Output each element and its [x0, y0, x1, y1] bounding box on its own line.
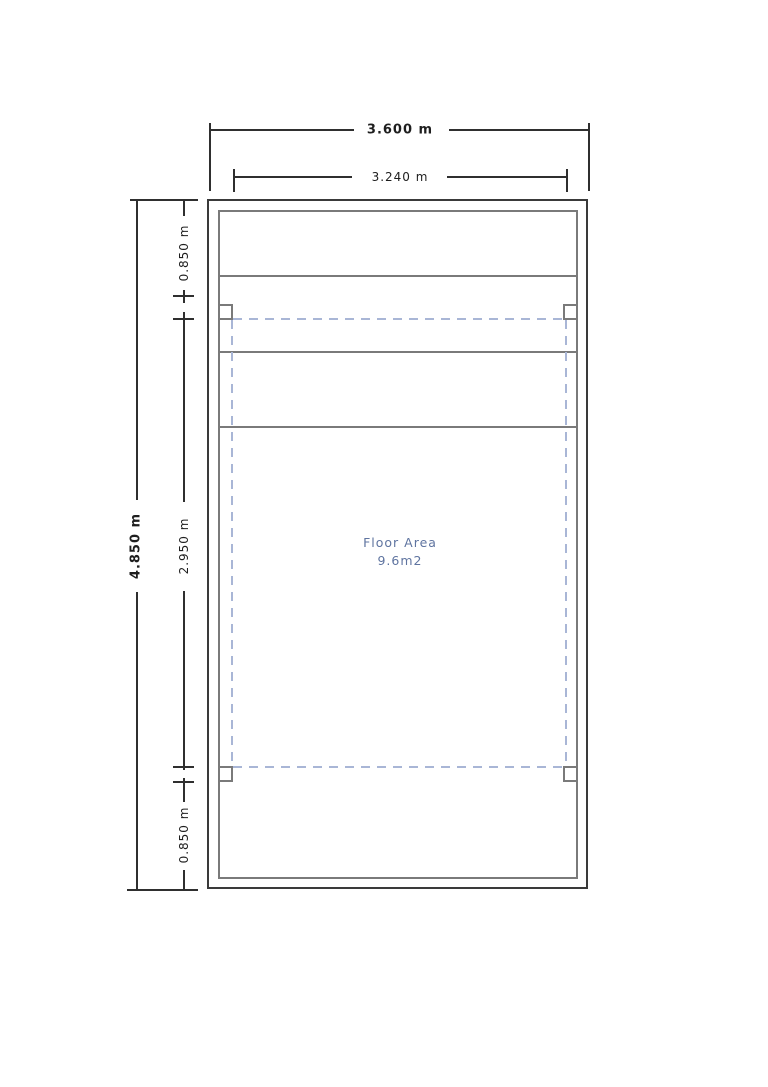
corner-post-bottom-right [563, 766, 578, 782]
dimension-line-bottom-offset-lower-segment [183, 870, 185, 890]
floor-area-boundary-bottom [233, 766, 563, 768]
partition-line-middle [220, 351, 577, 353]
dimension-line-inner-width-left-segment [233, 176, 352, 178]
extension-line-height-bottom [127, 889, 198, 891]
dimension-line-outer-height-bottom-segment [136, 592, 138, 890]
dimension-line-inner-width-right-segment [447, 176, 567, 178]
dimension-label-bottom-offset: 0.850 m [177, 805, 191, 866]
dimension-line-top-offset-upper-segment [183, 199, 185, 216]
partition-line-lower [220, 426, 577, 428]
partition-line-upper [220, 275, 577, 277]
dimension-label-outer-height: 4.850 m [129, 511, 144, 581]
dimension-label-inner-width: 3.240 m [370, 170, 431, 184]
floor-area-annotation: Floor Area 9.6m2 [363, 534, 437, 570]
extension-line-outer-width-right [588, 123, 590, 191]
corner-post-top-left [218, 304, 233, 320]
corner-post-bottom-left [218, 766, 233, 782]
floor-area-value: 9.6m2 [363, 552, 437, 570]
tick-inner-height-top [173, 318, 194, 320]
dimension-label-top-offset: 0.850 m [177, 223, 191, 284]
extension-line-height-top [130, 199, 198, 201]
tick-inner-height-bottom [173, 766, 194, 768]
dimension-label-outer-width: 3.600 m [365, 123, 435, 138]
corner-post-top-right [563, 304, 578, 320]
dimension-line-inner-height-bottom-segment [183, 591, 185, 770]
floor-area-title: Floor Area [363, 534, 437, 552]
extension-line-inner-width-right [566, 169, 568, 192]
dimension-label-inner-height: 2.950 m [177, 516, 191, 577]
floor-plan-canvas: 3.600 m 3.240 m 4.850 m 0.850 m 2.950 m … [0, 0, 768, 1087]
dimension-line-outer-width-left-segment [209, 129, 354, 131]
extension-line-inner-width-left [233, 169, 235, 192]
tick-top-offset-end [173, 295, 194, 297]
tick-bottom-offset-end [173, 781, 194, 783]
extension-line-outer-width-left [209, 123, 211, 191]
dimension-line-inner-height-top-segment [183, 312, 185, 502]
dimension-line-top-offset-lower-segment [183, 290, 185, 303]
dimension-line-outer-height-top-segment [136, 199, 138, 500]
floor-area-boundary-right [565, 320, 567, 766]
dimension-line-outer-width-right-segment [449, 129, 589, 131]
floor-area-boundary-top [233, 318, 563, 320]
floor-area-boundary-left [231, 320, 233, 766]
